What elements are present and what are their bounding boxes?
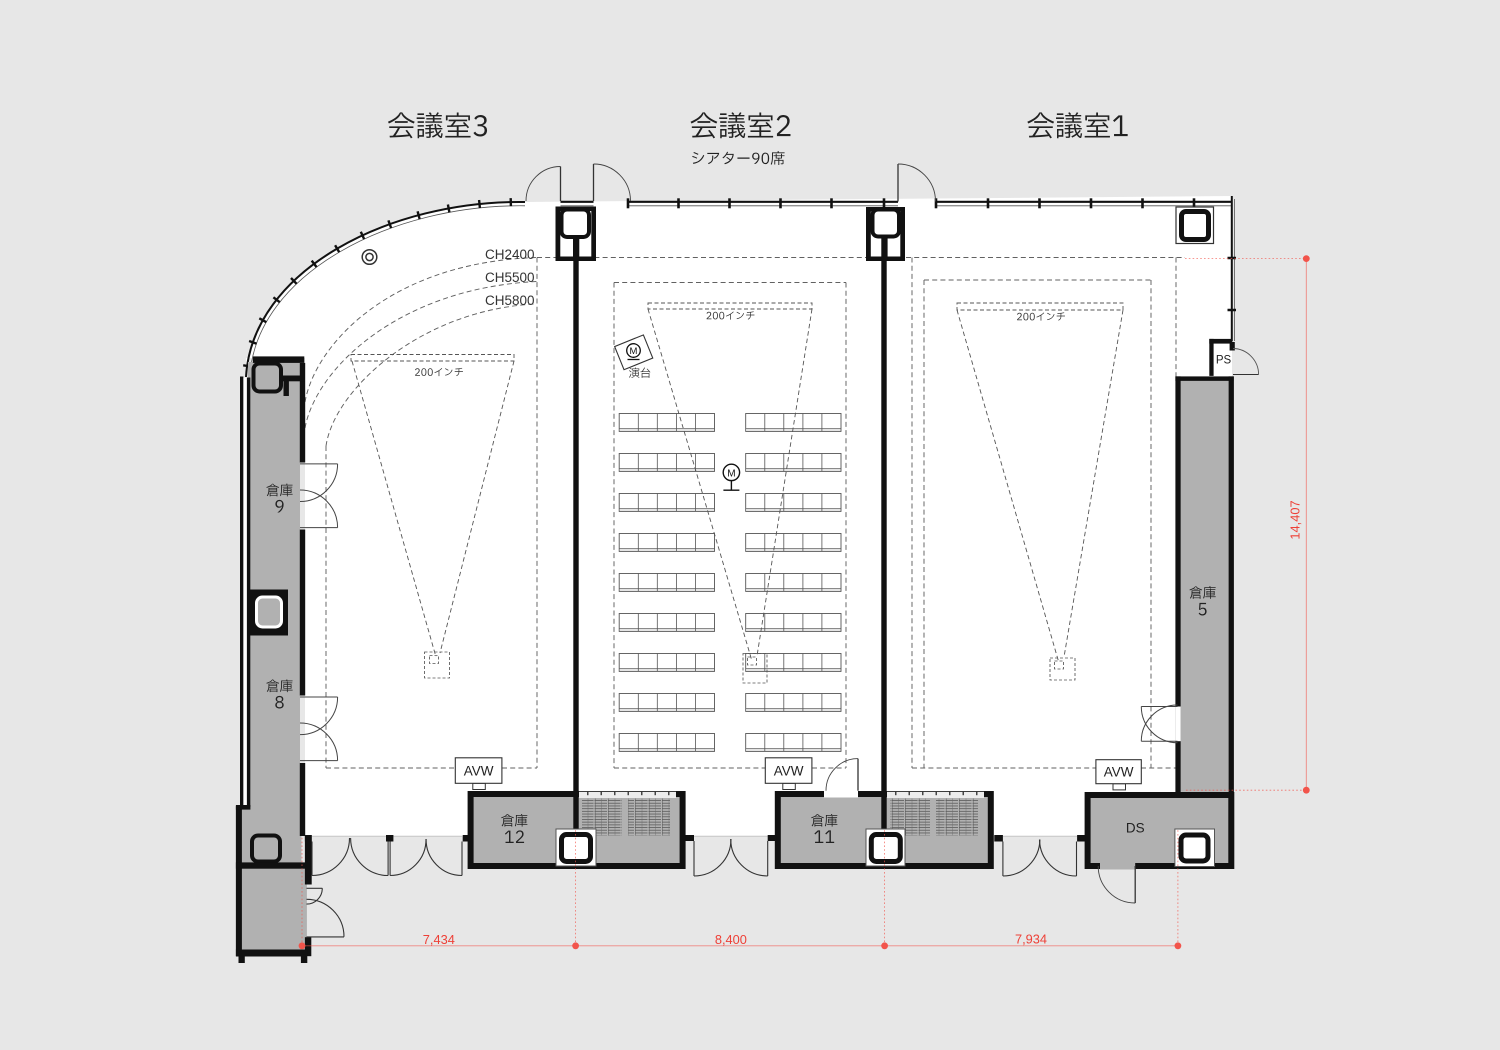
- svg-text:AVW: AVW: [774, 763, 804, 778]
- svg-text:14,407: 14,407: [1288, 500, 1303, 539]
- svg-text:CH5800: CH5800: [485, 293, 535, 308]
- svg-text:8,400: 8,400: [715, 932, 747, 947]
- svg-text:7,434: 7,434: [423, 932, 455, 947]
- svg-text:CH5500: CH5500: [485, 270, 535, 285]
- svg-text:CH2400: CH2400: [485, 247, 535, 262]
- svg-text:7,934: 7,934: [1015, 932, 1047, 947]
- svg-text:AVW: AVW: [1104, 764, 1134, 779]
- svg-text:AVW: AVW: [464, 763, 494, 778]
- svg-text:M: M: [727, 468, 735, 479]
- svg-text:M: M: [630, 346, 638, 357]
- svg-text:DS: DS: [1126, 821, 1145, 836]
- svg-text:PS: PS: [1216, 355, 1232, 367]
